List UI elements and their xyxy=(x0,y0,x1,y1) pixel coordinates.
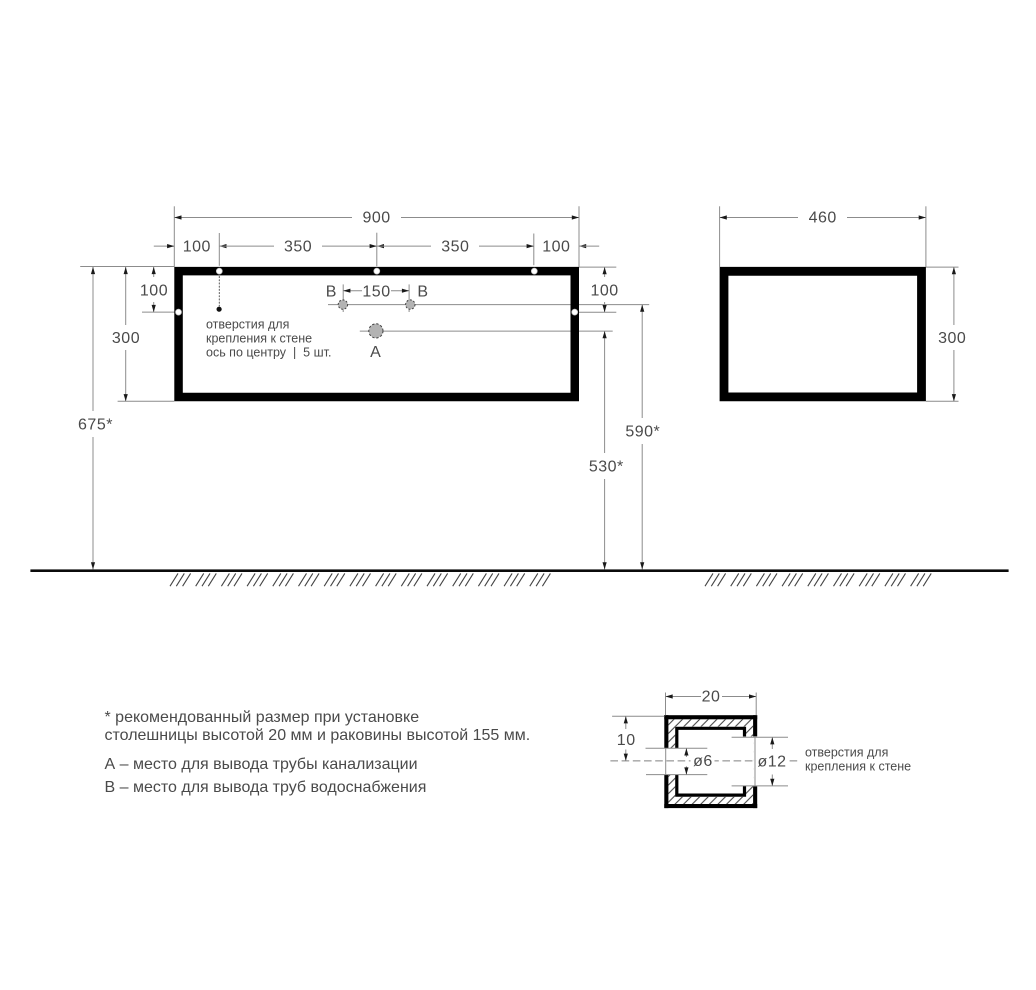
svg-text:100: 100 xyxy=(542,238,570,255)
svg-text:А – место для вывода трубы кан: А – место для вывода трубы канализации xyxy=(105,756,418,773)
svg-text:столешницы высотой 20 мм и рак: столешницы высотой 20 мм и раковины высо… xyxy=(105,727,531,744)
svg-text:10: 10 xyxy=(617,732,636,749)
svg-text:350: 350 xyxy=(441,238,469,255)
svg-text:ø12: ø12 xyxy=(757,753,786,770)
svg-text:20: 20 xyxy=(702,688,721,705)
svg-text:100: 100 xyxy=(590,282,618,299)
svg-text:100: 100 xyxy=(183,238,211,255)
svg-text:530*: 530* xyxy=(589,459,624,476)
svg-text:отверстия для: отверстия для xyxy=(206,318,289,332)
svg-text:В – место для вывода труб водо: В – место для вывода труб водоснабжения xyxy=(105,779,427,796)
svg-text:В: В xyxy=(326,284,337,301)
svg-text:150: 150 xyxy=(362,283,390,300)
svg-text:ø6: ø6 xyxy=(693,753,713,770)
svg-text:590*: 590* xyxy=(625,423,660,440)
svg-text:350: 350 xyxy=(284,238,312,255)
svg-text:отверстия для: отверстия для xyxy=(805,746,888,760)
svg-text:крепления к стене: крепления к стене xyxy=(206,331,312,345)
svg-text:100: 100 xyxy=(140,282,168,299)
svg-text:ось по центру | 5 шт.: ось по центру | 5 шт. xyxy=(206,345,331,359)
svg-text:крепления к стене: крепления к стене xyxy=(805,759,911,773)
svg-text:А: А xyxy=(370,344,381,361)
svg-text:460: 460 xyxy=(809,210,837,227)
svg-text:300: 300 xyxy=(112,330,140,347)
svg-text:900: 900 xyxy=(362,210,390,227)
svg-text:675*: 675* xyxy=(78,416,113,433)
svg-text:* рекомендованный размер при у: * рекомендованный размер при установке xyxy=(105,709,420,726)
svg-text:В: В xyxy=(417,284,428,301)
svg-text:300: 300 xyxy=(938,330,966,347)
